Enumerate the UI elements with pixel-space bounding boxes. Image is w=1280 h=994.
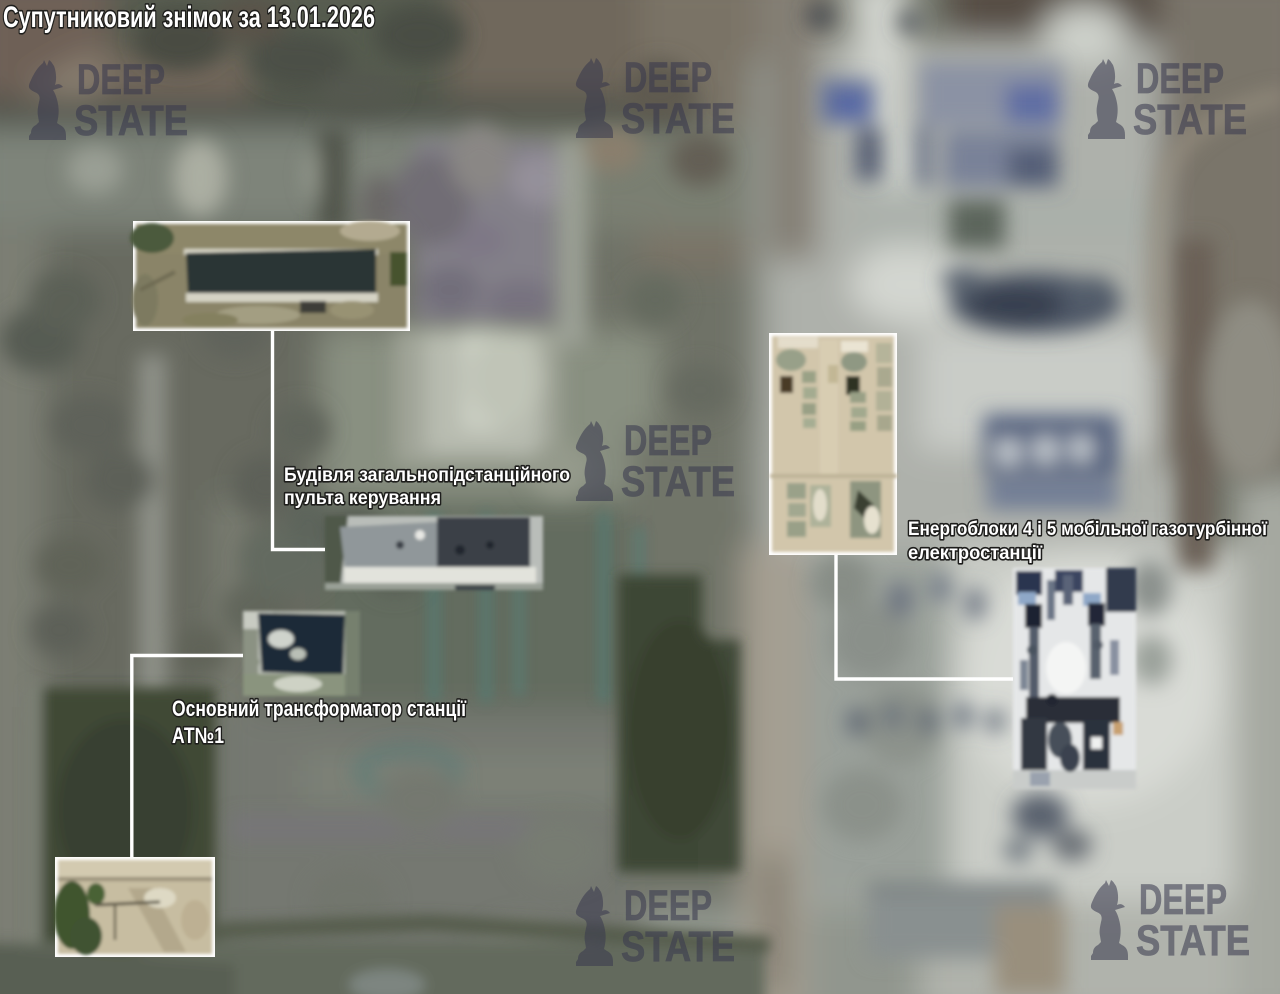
svg-text:електростанції: електростанції [908,543,1043,564]
svg-text:Супутниковий знімок за 13.01.2: Супутниковий знімок за 13.01.2026 [3,1,375,34]
svg-text:пульта керування: пульта керування [284,488,441,509]
svg-text:АТ№1: АТ№1 [172,723,224,748]
svg-text:Будівля загальнопідстанційного: Будівля загальнопідстанційного [284,465,570,486]
svg-text:Енергоблоки 4 і 5 мобільної га: Енергоблоки 4 і 5 мобільної газотурбінно… [908,519,1268,540]
svg-text:Основний трансформатор станції: Основний трансформатор станції [172,696,467,721]
